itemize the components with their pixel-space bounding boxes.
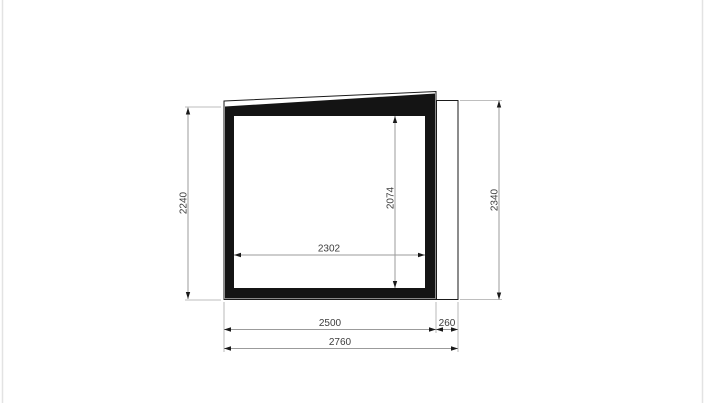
dim-label-inner-height: 2074 [386, 186, 397, 209]
dim-label-total-width: 2760 [329, 337, 352, 348]
arrow-right-icon [451, 346, 458, 350]
dim-body-width: 2500 [224, 318, 458, 332]
dim-total-width: 2760 [224, 337, 458, 351]
arrow-right-icon [429, 327, 436, 331]
dim-label-left-height: 2240 [179, 191, 190, 214]
arrow-left-icon [224, 346, 231, 350]
dim-label-extension-width: 260 [439, 318, 456, 329]
cad-viewport: 2240 2074 2340 2302 2500 260 2760 [0, 0, 714, 403]
dim-label-right-height: 2340 [490, 188, 501, 211]
cad-drawing: 2240 2074 2340 2302 2500 260 2760 [0, 0, 714, 403]
dim-label-inner-width: 2302 [318, 244, 341, 255]
dim-label-body-width: 2500 [319, 318, 342, 329]
arrow-up-icon [497, 101, 501, 108]
arrow-down-icon [497, 293, 501, 300]
arrow-up-icon [186, 108, 190, 115]
side-extension [437, 101, 459, 300]
structure-elevation [224, 92, 458, 300]
roof-sheet-outline [224, 92, 436, 300]
dim-left-height: 2240 [179, 108, 191, 300]
dim-right-height: 2340 [490, 101, 502, 300]
arrow-left-icon [224, 327, 231, 331]
arrow-down-icon [186, 292, 190, 299]
